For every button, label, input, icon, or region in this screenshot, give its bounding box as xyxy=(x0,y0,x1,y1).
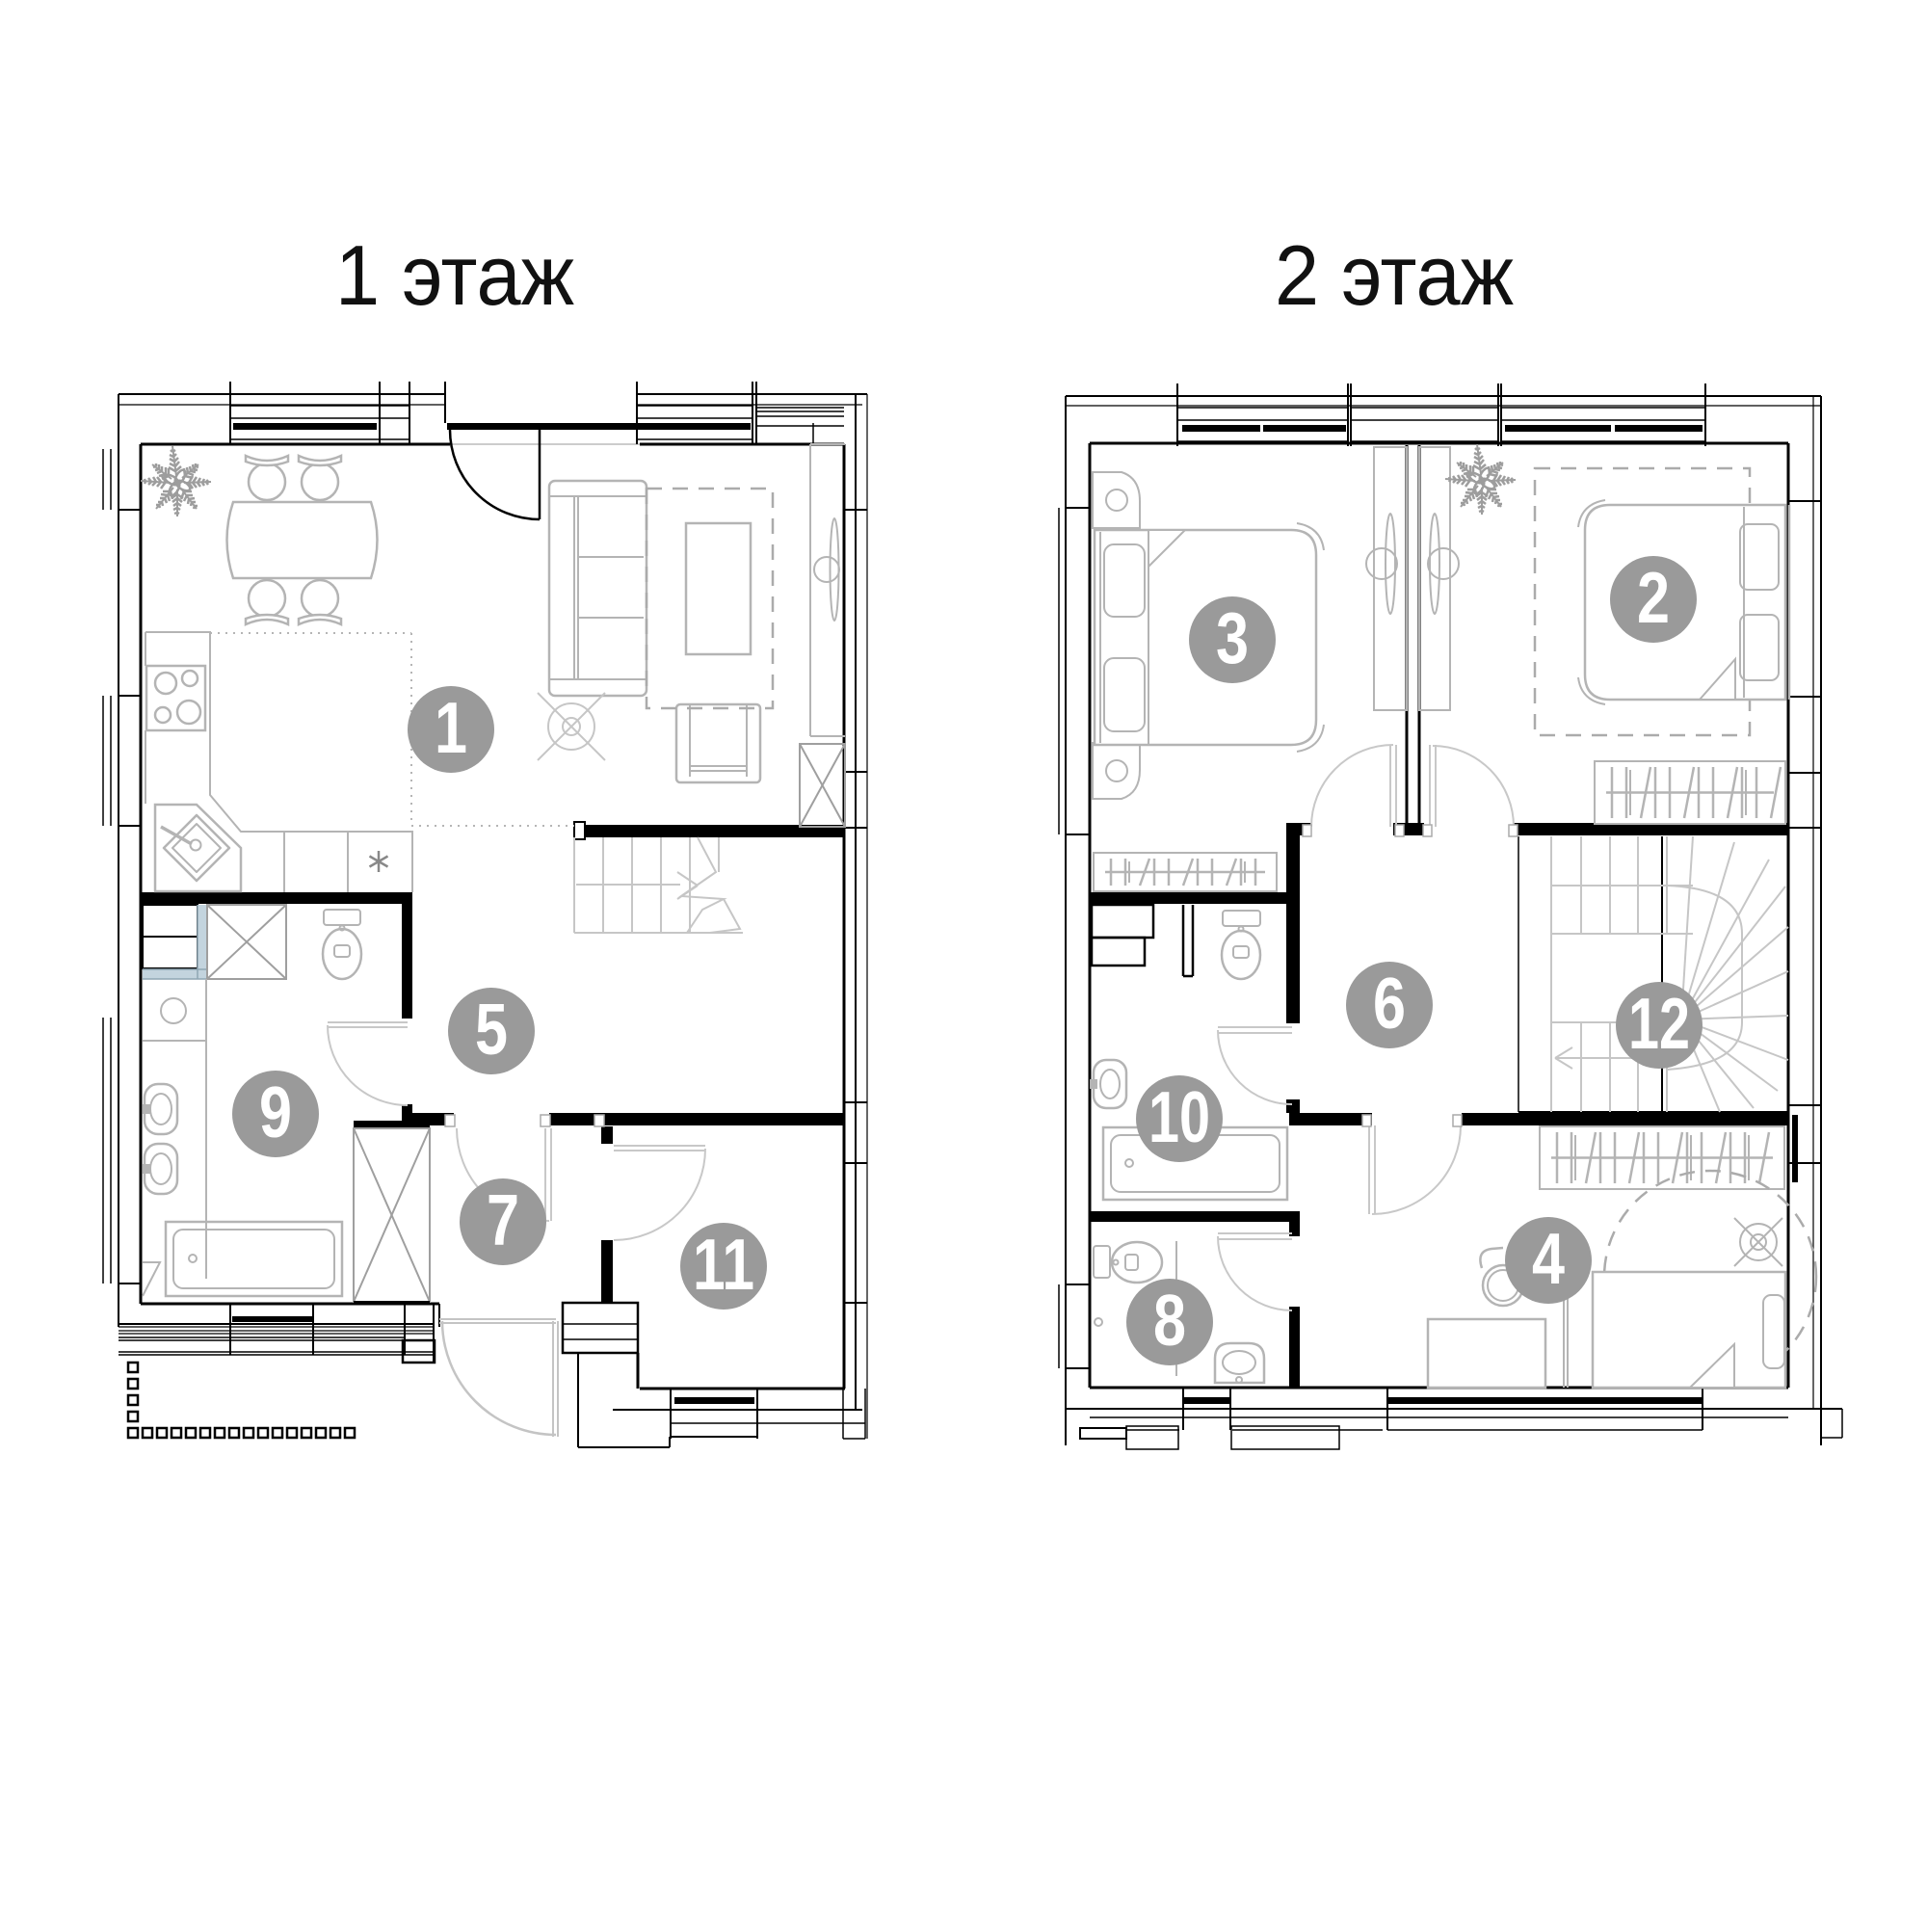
svg-text:1 этаж: 1 этаж xyxy=(335,227,574,323)
svg-text:7: 7 xyxy=(487,1179,519,1260)
svg-text:2: 2 xyxy=(1637,557,1670,638)
svg-text:6: 6 xyxy=(1373,963,1406,1044)
svg-text:12: 12 xyxy=(1628,983,1690,1064)
svg-text:10: 10 xyxy=(1148,1076,1210,1157)
svg-text:11: 11 xyxy=(693,1224,754,1305)
svg-text:9: 9 xyxy=(259,1072,292,1152)
svg-text:5: 5 xyxy=(475,989,508,1070)
svg-text:1: 1 xyxy=(435,687,467,768)
svg-text:4: 4 xyxy=(1532,1218,1565,1299)
svg-text:2 этаж: 2 этаж xyxy=(1275,227,1514,323)
svg-text:8: 8 xyxy=(1153,1280,1186,1361)
svg-text:3: 3 xyxy=(1216,597,1249,678)
